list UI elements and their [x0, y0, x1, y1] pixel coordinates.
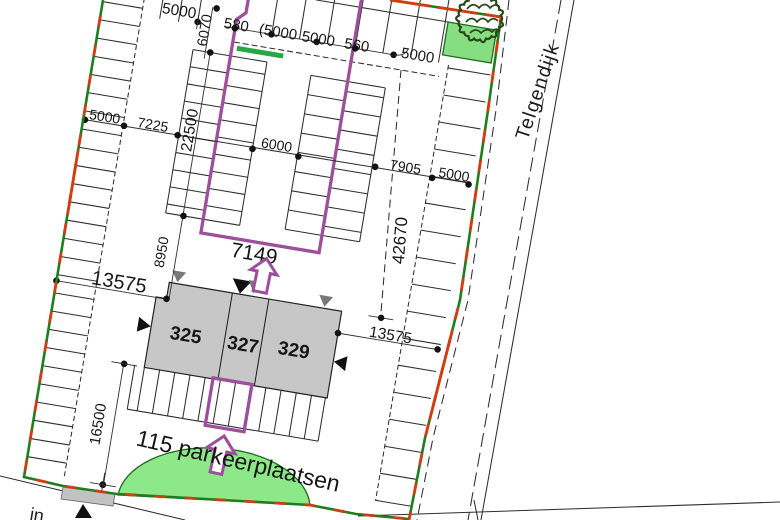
svg-text:in: in — [28, 504, 45, 520]
svg-text:42670: 42670 — [389, 216, 412, 265]
